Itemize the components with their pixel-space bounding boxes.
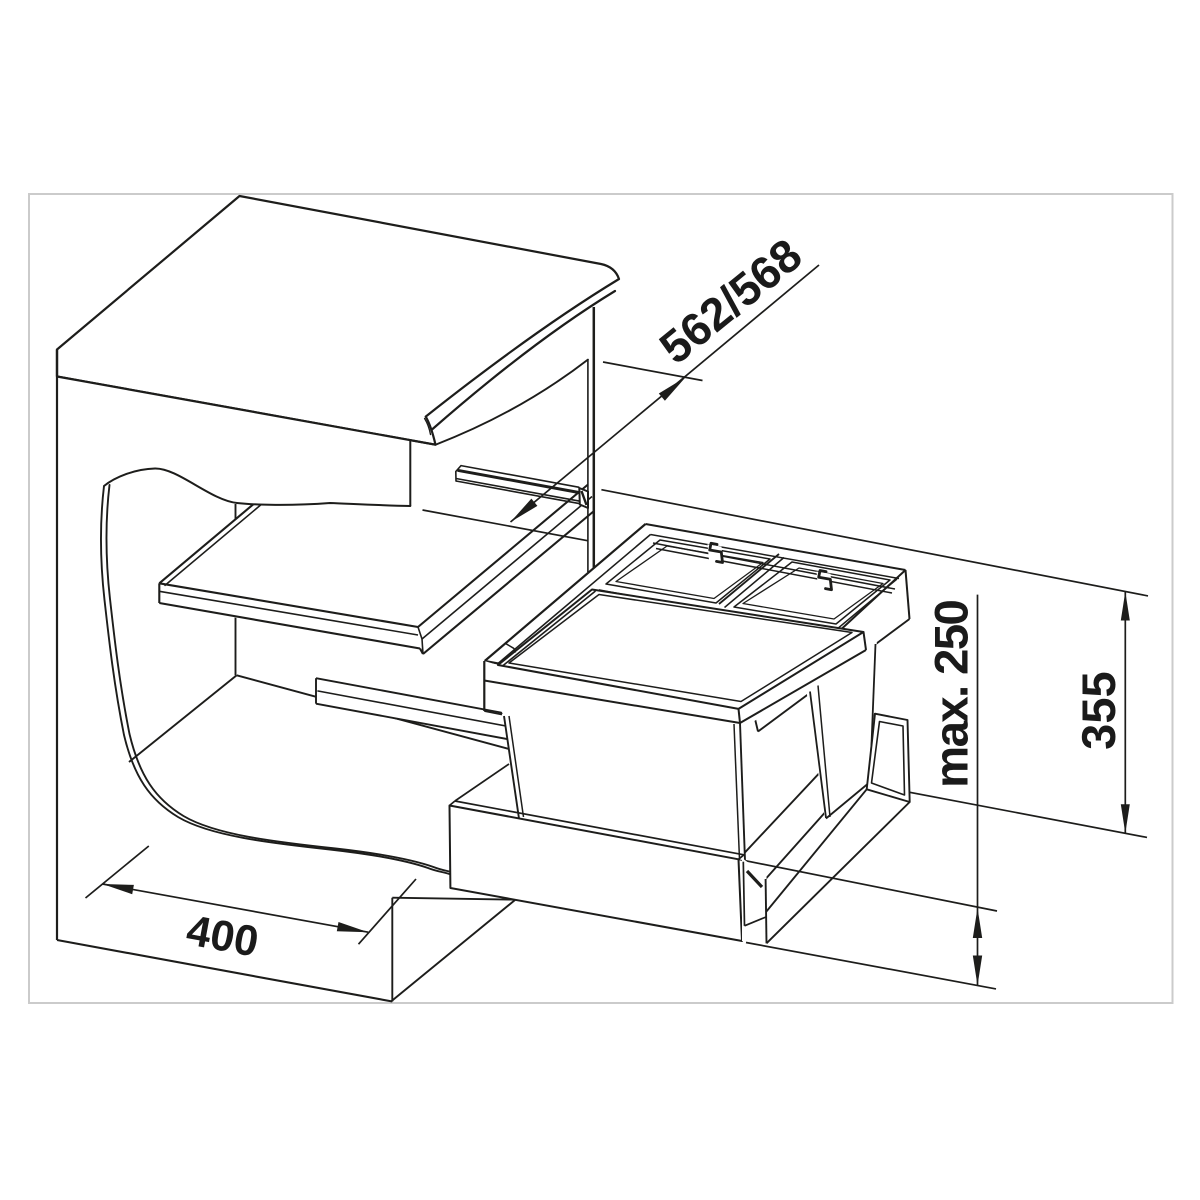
svg-text:max. 250: max. 250	[925, 601, 978, 788]
svg-text:355: 355	[1072, 671, 1125, 749]
